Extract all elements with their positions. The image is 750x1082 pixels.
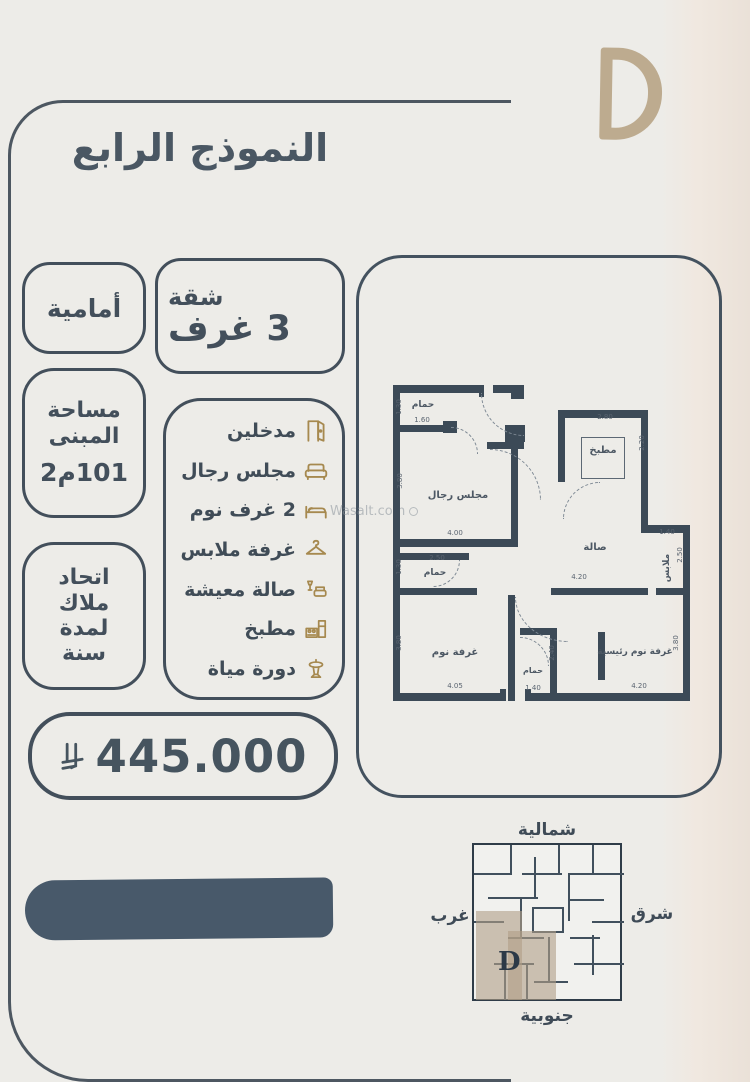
facade-label: أمامية <box>47 294 121 323</box>
brand-letter-d-logo <box>599 47 663 140</box>
room-label-hall: صالة <box>573 542 617 553</box>
feature-kitchen: مطبخ <box>176 616 329 642</box>
redacted-contact-bar <box>25 877 334 940</box>
dim-label: 2.40 <box>548 642 556 664</box>
hanger-icon <box>303 537 329 563</box>
hoa-word-3: لمدة <box>60 616 109 641</box>
compass-north-label: شمالية <box>472 820 622 840</box>
key-plan-wall <box>592 921 624 923</box>
feature-dressing-room: غرفة ملابس <box>176 537 329 563</box>
dim-label: 3.80 <box>396 470 404 492</box>
hoa-word-2: ملاك <box>59 591 110 616</box>
feature-bathroom: دورة مياة <box>176 656 329 682</box>
key-plan-stair-core <box>532 907 564 933</box>
living-room-icon <box>303 577 329 603</box>
dim-label: 4.20 <box>615 682 663 690</box>
saudi-riyal-symbol <box>59 741 86 771</box>
hoa-word-4: سنة <box>62 641 106 666</box>
feature-label: دورة مياة <box>208 658 296 680</box>
feature-label: مدخلين <box>227 420 296 442</box>
dim-label: 4.00 <box>433 529 477 537</box>
key-plan: D <box>472 843 622 1001</box>
feature-bedrooms: 2 غرف نوم <box>176 497 329 523</box>
key-plan-wall <box>570 899 604 901</box>
dim-label: 1.60 <box>407 416 437 424</box>
key-plan-wall <box>534 857 536 897</box>
feature-label: غرفة ملابس <box>180 539 296 561</box>
key-plan-wall <box>592 845 594 873</box>
room-label-bedroom: غرفة نوم <box>423 647 487 658</box>
area-value: 101م2 <box>40 458 128 488</box>
wall <box>393 693 506 701</box>
dim-label: 3.80 <box>395 632 403 654</box>
wall <box>395 588 477 595</box>
room-label-master-bedroom: غرفة نوم رئيسية <box>593 647 677 657</box>
dim-label: 4.20 <box>555 573 603 581</box>
dim-label: 3.80 <box>672 632 680 654</box>
dim-label: 2.50 <box>676 544 684 566</box>
listing-flyer: { "logo": {"letter": "D"}, "title": "الن… <box>0 0 750 1039</box>
room-label-bathroom-2: حمام <box>415 568 455 578</box>
sofa-icon <box>303 458 329 484</box>
door-swing-arc <box>520 637 549 666</box>
wall <box>395 539 518 547</box>
facade-badge: أمامية <box>22 262 146 354</box>
key-plan-wall <box>574 963 624 965</box>
washbasin-icon <box>303 656 329 682</box>
dim-label: 1.40 <box>515 684 551 692</box>
key-plan-wall <box>522 873 562 875</box>
wall <box>656 588 690 595</box>
door-swing-arc <box>515 597 568 642</box>
key-plan-wall <box>570 873 624 875</box>
key-plan-wall <box>570 937 600 939</box>
door-swing-arc <box>490 449 541 500</box>
dim-label: 1.40 <box>649 528 685 536</box>
dim-label: 1.30 <box>395 556 403 578</box>
feature-living-hall: صالة معيشة <box>176 577 329 603</box>
apartment-type-box: شقة 3 غرف <box>155 258 345 374</box>
wall <box>393 385 479 393</box>
feature-label: مطبخ <box>244 618 296 640</box>
owners-union-badge: اتحاد ملاك لمدة سنة <box>22 542 146 690</box>
compass-west-label: غرب <box>430 906 470 926</box>
compass-south-label: جنوبية <box>472 1006 622 1026</box>
area-word-1: مساحة <box>47 398 120 424</box>
price-amount: 445.000 <box>96 730 308 783</box>
page-title: النموذج الرابع <box>40 126 360 170</box>
key-plan-wall <box>568 873 570 921</box>
room-label-majlis: مجلس رجال <box>423 490 493 501</box>
feature-label: مجلس رجال <box>181 460 296 482</box>
wall <box>641 410 648 532</box>
door-jamb <box>500 689 506 701</box>
room-label-bathroom-3: حمام <box>515 666 551 675</box>
wall <box>397 425 447 432</box>
feature-majlis: مجلس رجال <box>176 458 329 484</box>
apartment-type: شقة <box>168 283 223 311</box>
key-plan-wall <box>558 845 560 873</box>
key-plan-wall <box>592 935 594 975</box>
feature-label: صالة معيشة <box>184 579 296 601</box>
wall <box>508 595 515 701</box>
door-swing-arc <box>451 427 478 454</box>
dim-label: 2.50 <box>419 554 455 562</box>
dim-label: 1.30 <box>395 396 403 418</box>
area-word-2: المبنى <box>49 424 120 450</box>
room-label-kitchen: مطبخ <box>581 445 625 456</box>
room-label-closet: ملابس <box>662 548 672 588</box>
building-area-badge: مساحة المبنى 101م2 <box>22 368 146 518</box>
floor-plan: حمام 1.30 1.60 مجلس رجال 3.80 4.00 مطبخ … <box>393 385 693 707</box>
wall <box>551 588 648 595</box>
key-plan-wall <box>510 845 512 873</box>
hoa-word-1: اتحاد <box>58 565 109 590</box>
door-swing-arc <box>563 482 600 519</box>
kitchen-counter <box>581 437 625 479</box>
room-label-bathroom-1: حمام <box>403 400 443 410</box>
bed-icon <box>303 497 329 523</box>
features-box: مدخلين مجلس رجال 2 غرف نوم غرفة ملابس صا… <box>163 398 345 700</box>
feature-label: 2 غرف نوم <box>190 499 296 521</box>
door-swing-arc <box>481 393 524 436</box>
price-box: 445.000 <box>28 712 338 800</box>
dim-label: 2.20 <box>638 432 646 454</box>
dim-label: 2.80 <box>583 413 627 421</box>
apartment-rooms: 3 غرف <box>168 311 291 348</box>
key-plan-wall <box>488 897 538 899</box>
dim-label: 4.05 <box>433 682 477 690</box>
feature-entrances: مدخلين <box>176 418 329 444</box>
key-plan-wall <box>474 873 512 875</box>
wall <box>487 442 524 449</box>
door-icon <box>303 418 329 444</box>
kitchen-icon <box>303 616 329 642</box>
wall <box>683 525 690 700</box>
wall <box>558 410 565 482</box>
compass-east-label: شرق <box>630 904 674 924</box>
unit-letter: D <box>498 947 521 977</box>
